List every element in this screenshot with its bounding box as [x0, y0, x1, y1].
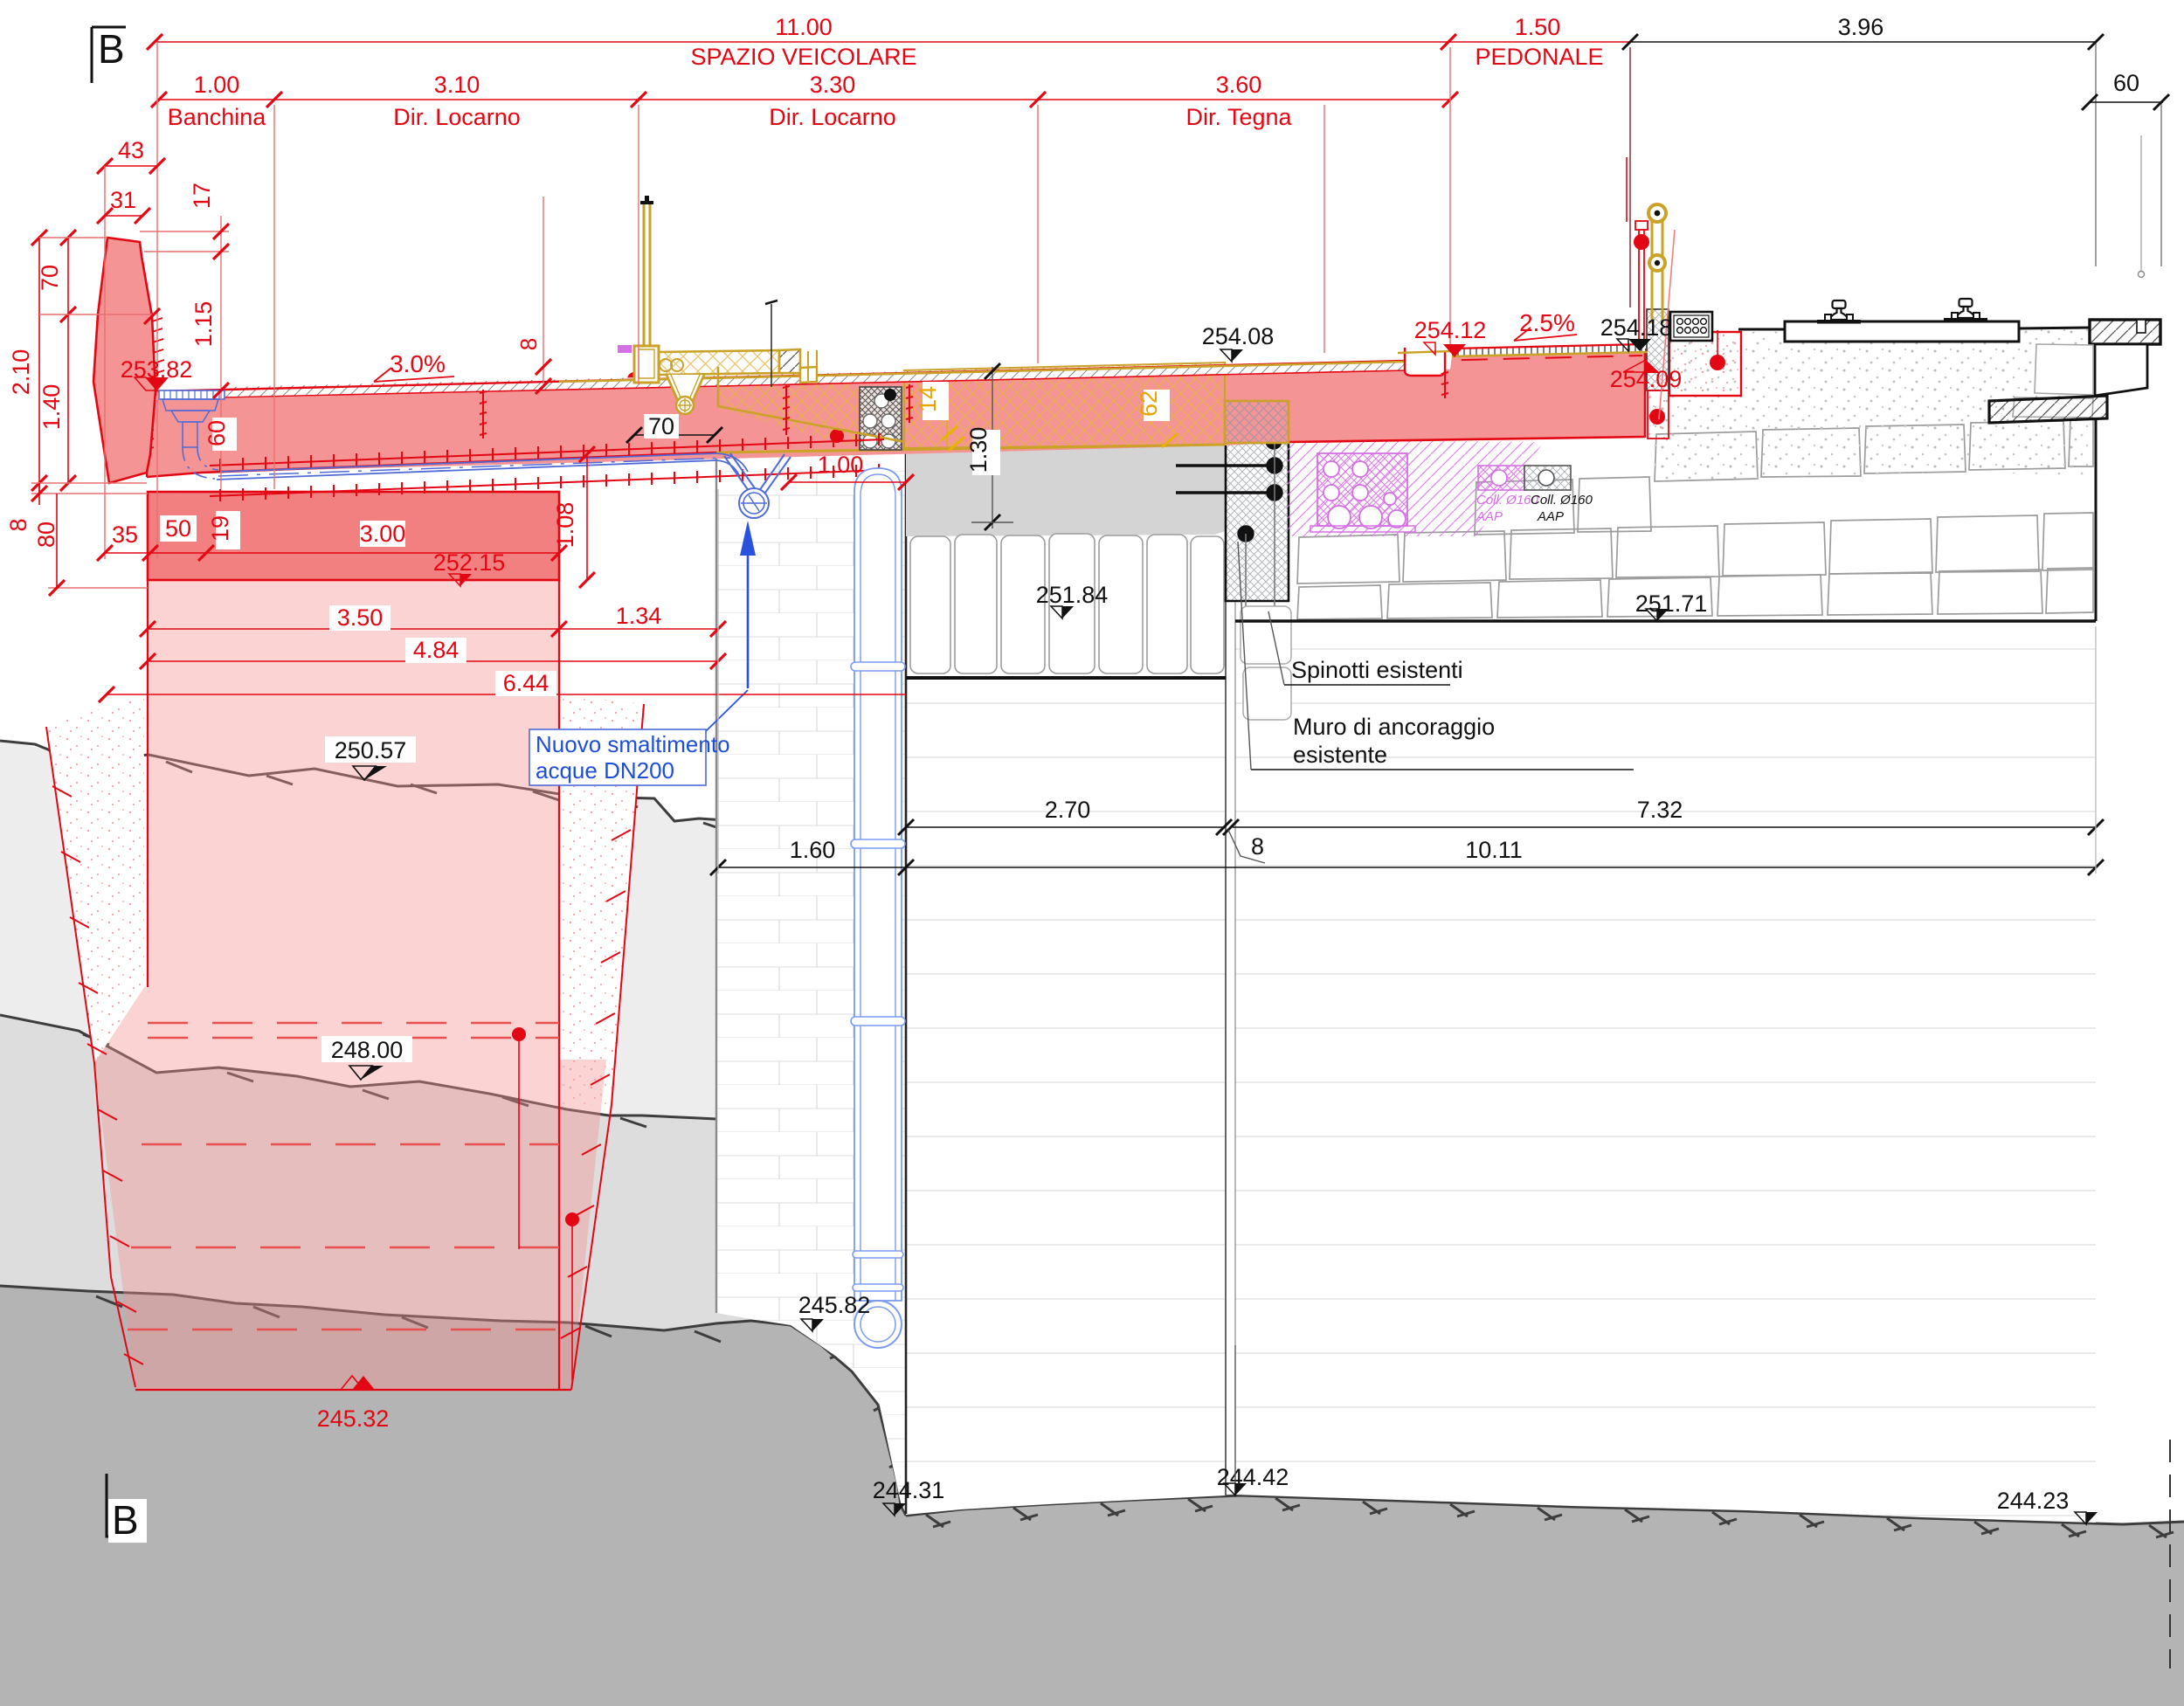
svg-text:251.84: 251.84 — [1036, 582, 1109, 608]
svg-text:245.32: 245.32 — [317, 1406, 390, 1432]
svg-text:62: 62 — [1136, 390, 1162, 417]
svg-text:acque DN200: acque DN200 — [536, 757, 674, 784]
svg-text:244.31: 244.31 — [873, 1477, 945, 1503]
svg-text:19: 19 — [207, 515, 233, 542]
svg-text:1.08: 1.08 — [552, 502, 578, 549]
svg-text:244.23: 244.23 — [1997, 1488, 2070, 1514]
svg-text:SPAZIO VEICOLARE: SPAZIO VEICOLARE — [690, 44, 916, 70]
svg-text:B: B — [98, 26, 125, 72]
svg-text:3.10: 3.10 — [434, 72, 480, 98]
svg-text:254.18: 254.18 — [1600, 314, 1673, 341]
svg-text:1.50: 1.50 — [1515, 14, 1561, 40]
svg-text:1.00: 1.00 — [194, 72, 240, 98]
svg-text:17: 17 — [189, 183, 215, 209]
svg-text:31: 31 — [110, 187, 136, 213]
svg-text:1.40: 1.40 — [38, 384, 65, 431]
svg-text:1.00: 1.00 — [818, 452, 864, 478]
svg-text:Muro di ancoraggio: Muro di ancoraggio — [1293, 714, 1495, 740]
svg-text:70: 70 — [648, 413, 674, 439]
svg-text:70: 70 — [37, 265, 63, 291]
svg-text:2.70: 2.70 — [1045, 797, 1091, 823]
svg-text:8: 8 — [1251, 833, 1264, 860]
svg-text:Dir. Tegna: Dir. Tegna — [1185, 104, 1292, 130]
svg-text:1.15: 1.15 — [190, 301, 217, 348]
svg-text:B: B — [112, 1497, 139, 1543]
svg-text:1.60: 1.60 — [790, 837, 836, 863]
svg-text:Coll. Ø160: Coll. Ø160 — [1476, 493, 1539, 508]
svg-text:10.11: 10.11 — [1465, 837, 1523, 863]
svg-text:60: 60 — [2113, 70, 2139, 96]
svg-text:7.32: 7.32 — [1637, 797, 1683, 823]
svg-text:254.08: 254.08 — [1202, 323, 1275, 349]
svg-text:3.30: 3.30 — [810, 72, 856, 98]
svg-text:43: 43 — [118, 137, 144, 163]
svg-text:2.5%: 2.5% — [1519, 309, 1575, 336]
svg-text:252.15: 252.15 — [433, 549, 506, 576]
svg-text:Dir. Locarno: Dir. Locarno — [393, 104, 521, 130]
svg-text:3.96: 3.96 — [1838, 14, 1884, 40]
svg-text:14: 14 — [915, 386, 941, 412]
svg-text:245.82: 245.82 — [798, 1292, 871, 1318]
svg-text:35: 35 — [112, 521, 138, 548]
svg-text:PEDONALE: PEDONALE — [1475, 44, 1603, 70]
svg-text:6.44: 6.44 — [503, 670, 549, 696]
svg-text:1.30: 1.30 — [965, 427, 992, 473]
svg-text:254.12: 254.12 — [1414, 317, 1487, 343]
svg-text:1.34: 1.34 — [616, 603, 662, 629]
svg-text:2.10: 2.10 — [8, 349, 34, 396]
svg-text:50: 50 — [165, 515, 191, 542]
svg-text:Nuovo smaltimento: Nuovo smaltimento — [536, 731, 730, 757]
svg-text:250.57: 250.57 — [335, 737, 407, 763]
svg-text:80: 80 — [33, 521, 59, 548]
svg-text:Spinotti esistenti: Spinotti esistenti — [1291, 657, 1463, 683]
svg-text:esistente: esistente — [1293, 742, 1387, 768]
svg-text:Banchina: Banchina — [168, 104, 267, 130]
svg-text:3.60: 3.60 — [1216, 72, 1262, 98]
svg-text:AAP: AAP — [1537, 509, 1564, 524]
svg-text:3.50: 3.50 — [337, 604, 384, 631]
svg-text:Coll. Ø160: Coll. Ø160 — [1531, 493, 1593, 508]
svg-text:4.84: 4.84 — [413, 637, 460, 663]
svg-text:8: 8 — [515, 338, 542, 350]
svg-text:Dir. Locarno: Dir. Locarno — [769, 104, 896, 130]
svg-text:AAP: AAP — [1476, 509, 1503, 524]
svg-text:251.71: 251.71 — [1635, 591, 1708, 617]
svg-text:8: 8 — [5, 518, 31, 531]
svg-text:60: 60 — [204, 420, 230, 446]
svg-text:3.00: 3.00 — [360, 521, 406, 547]
svg-text:11.00: 11.00 — [775, 14, 833, 40]
svg-text:248.00: 248.00 — [331, 1037, 404, 1063]
svg-text:3.0%: 3.0% — [390, 350, 446, 377]
